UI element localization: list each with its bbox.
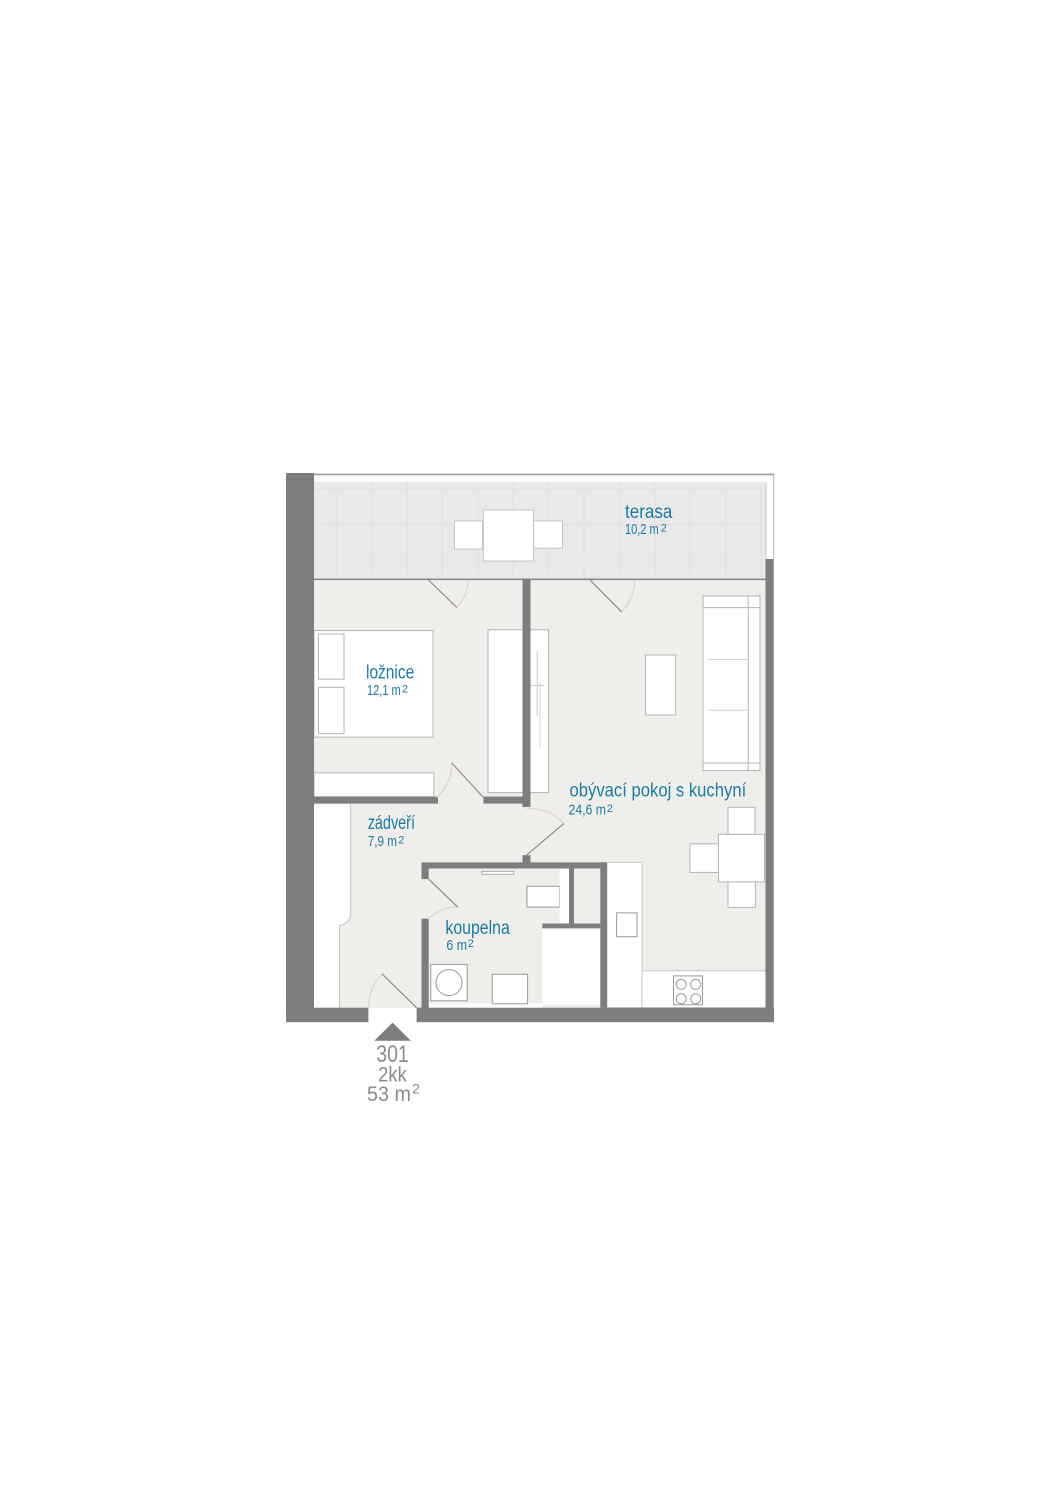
svg-text:2: 2: [607, 803, 613, 815]
svg-text:2: 2: [398, 835, 404, 847]
svg-text:ložnice: ložnice: [366, 662, 414, 683]
svg-text:6 m: 6 m: [446, 937, 467, 954]
svg-text:24,6 m: 24,6 m: [569, 802, 607, 819]
svg-text:2: 2: [661, 522, 667, 534]
svg-text:10,2 m: 10,2 m: [625, 521, 659, 538]
svg-text:2: 2: [402, 684, 408, 696]
svg-text:zádveří: zádveří: [368, 813, 416, 834]
svg-text:2: 2: [412, 1081, 420, 1097]
svg-text:obývací pokoj s kuchyní: obývací pokoj s kuchyní: [570, 781, 747, 802]
svg-text:12,1 m: 12,1 m: [367, 682, 401, 699]
svg-text:terasa: terasa: [625, 502, 673, 523]
svg-text:2: 2: [468, 938, 474, 950]
svg-text:7,9 m: 7,9 m: [368, 833, 397, 850]
svg-text:53 m: 53 m: [367, 1083, 411, 1106]
